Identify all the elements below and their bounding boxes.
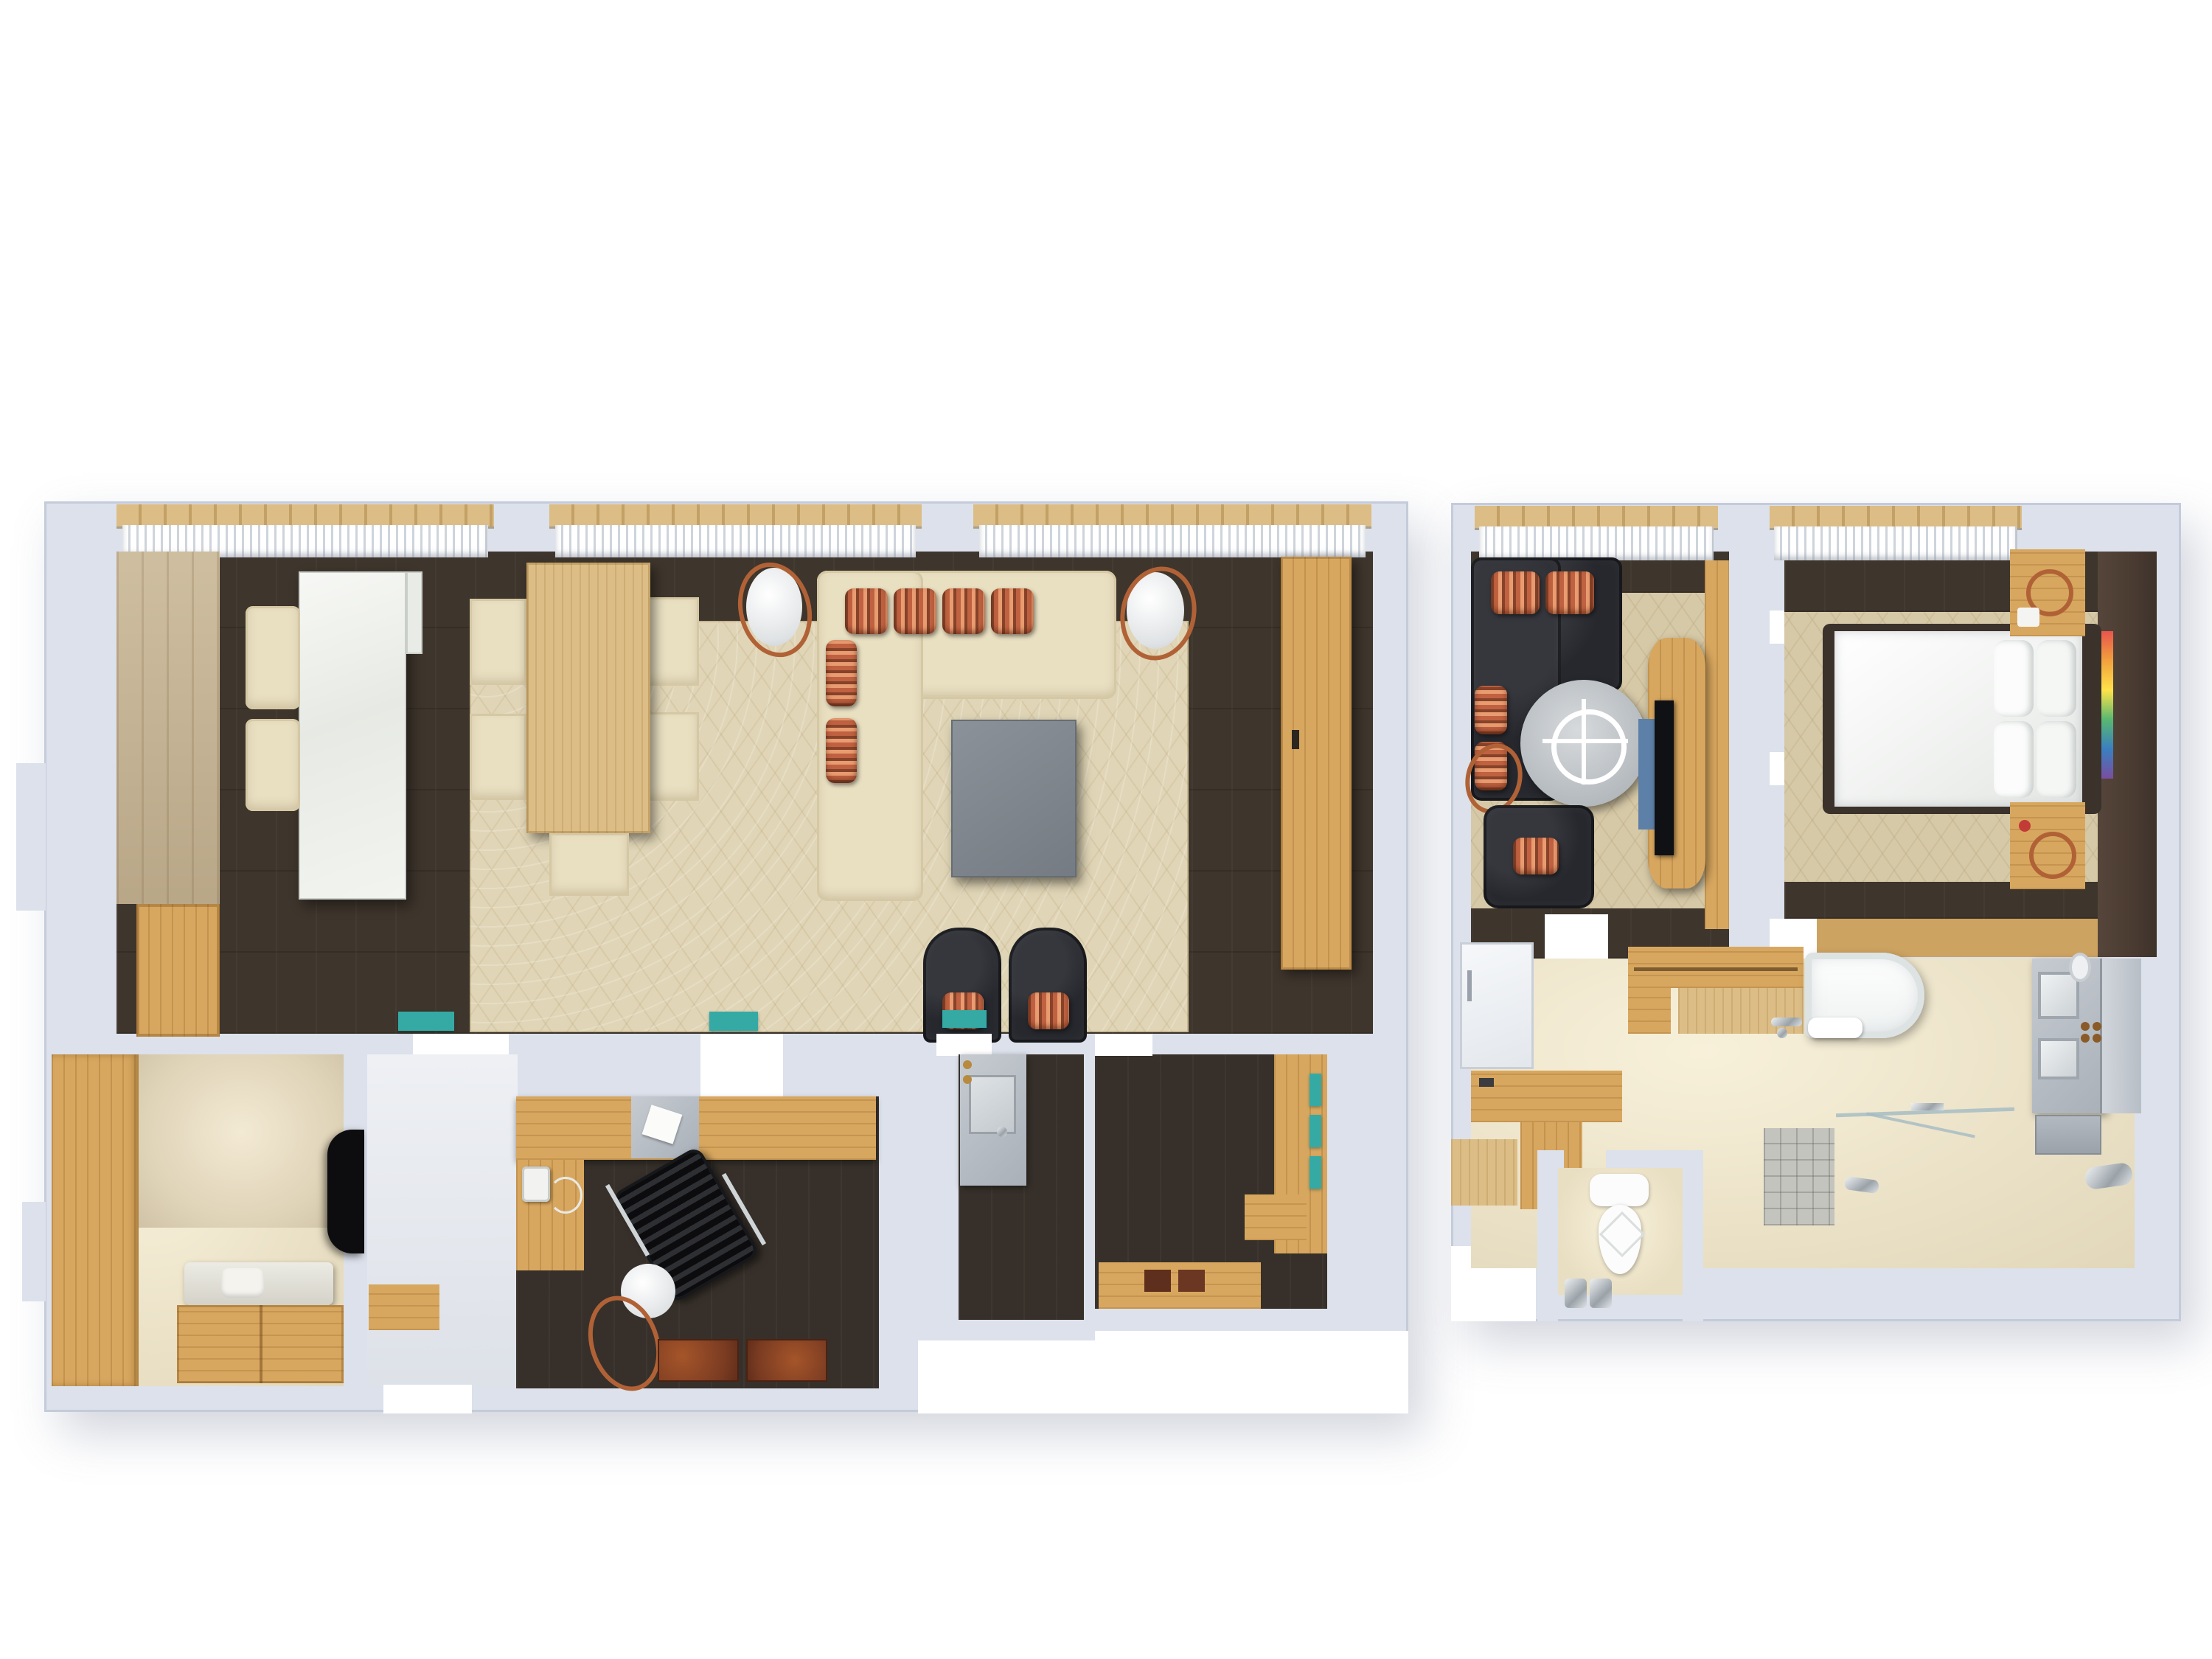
vanity-sink-2 bbox=[2038, 1038, 2079, 1079]
dark-sofa-pillow-3 bbox=[1475, 686, 1507, 734]
sofa-pillow-5 bbox=[826, 640, 857, 706]
vanity-oval-mirror bbox=[2069, 953, 2091, 982]
dark-sofa-pillow-2 bbox=[1545, 571, 1594, 614]
exterior-cutout-1 bbox=[1095, 1331, 1408, 1413]
wc-wall-top-2 bbox=[1606, 1150, 1703, 1168]
bedroom-wall-tab-1 bbox=[1770, 611, 1784, 644]
closet-glass-door-1 bbox=[1310, 1074, 1321, 1106]
door-mat-2 bbox=[709, 1012, 758, 1031]
bed-pillow-3 bbox=[2037, 640, 2076, 717]
bedroom-window-valance bbox=[1770, 506, 2022, 528]
wc-wall-left bbox=[1537, 1150, 1558, 1321]
closet-glass-door-2 bbox=[1310, 1115, 1321, 1147]
spa-wardrobe-panels bbox=[52, 1054, 139, 1386]
dining-chair-1 bbox=[470, 599, 526, 685]
vanity-knob-3 bbox=[2081, 1034, 2090, 1043]
dining-table bbox=[526, 563, 650, 833]
toilet-paper-roll-2 bbox=[1590, 1279, 1612, 1308]
vanity-lower-cabinet bbox=[2035, 1115, 2101, 1155]
kitchen-island bbox=[299, 571, 406, 900]
office-telephone bbox=[522, 1166, 550, 1202]
entry-wood-step bbox=[369, 1284, 439, 1330]
window-valance-3 bbox=[973, 504, 1371, 526]
office-rug-1 bbox=[658, 1339, 739, 1382]
dining-chair-5 bbox=[549, 833, 629, 896]
window-valance-1 bbox=[116, 504, 494, 526]
sitting-door-gap bbox=[1545, 914, 1608, 959]
powder-faucet bbox=[997, 1127, 1007, 1137]
powder-sink bbox=[969, 1075, 1016, 1134]
window-curtain-2 bbox=[555, 525, 916, 557]
office-phone-cord bbox=[549, 1177, 582, 1214]
toilet-tank bbox=[1590, 1174, 1649, 1206]
bedroom-window-curtain bbox=[1774, 526, 2017, 560]
media-cabinet bbox=[1281, 557, 1352, 970]
doorway-3 bbox=[936, 1034, 992, 1056]
kitchen-cabinet bbox=[136, 904, 220, 1037]
spa-wall-tv bbox=[327, 1130, 364, 1253]
spa-glow-wall bbox=[139, 1054, 344, 1228]
lounge-chair-2-pillow bbox=[1028, 992, 1069, 1029]
bed-pillow-1 bbox=[1994, 640, 2034, 717]
closet-stored-item-1 bbox=[1144, 1270, 1171, 1292]
table-lamp-2 bbox=[2029, 832, 2076, 879]
tub-faucet bbox=[1771, 1018, 1802, 1026]
window-valance-2 bbox=[549, 504, 922, 526]
media-cabinet-handle bbox=[1292, 730, 1299, 749]
closet-doorway bbox=[1095, 1034, 1152, 1056]
powder-towel-hook-1 bbox=[963, 1060, 972, 1069]
entry-hall-floor bbox=[367, 1054, 518, 1386]
floor-plan-scene bbox=[0, 0, 2212, 1659]
bed-pillow-2 bbox=[1994, 721, 2034, 798]
exterior-cutout-2 bbox=[918, 1340, 1095, 1413]
bedroom-threshold bbox=[1784, 919, 2098, 957]
door-mat-1 bbox=[398, 1012, 454, 1031]
closet-niche-rail bbox=[1634, 967, 1798, 971]
closet-niche-bench bbox=[1678, 988, 1804, 1034]
doorway-2 bbox=[700, 1034, 783, 1100]
sofa-pillow-4 bbox=[991, 588, 1034, 634]
closet-glass-door-3 bbox=[1310, 1156, 1321, 1189]
minibar-handle bbox=[1467, 970, 1472, 1001]
closet-stored-item-2 bbox=[1178, 1270, 1205, 1292]
sofa-pillow-1 bbox=[845, 588, 888, 634]
spa-drawer-seam bbox=[260, 1305, 262, 1383]
window-curtain-3 bbox=[979, 525, 1366, 557]
closet-niche-shelf bbox=[1628, 988, 1671, 1034]
coffee-table bbox=[951, 720, 1077, 877]
door-mat-3 bbox=[942, 1010, 987, 1028]
sitting-wood-wall-band bbox=[1705, 560, 1729, 929]
entry-door-gap bbox=[383, 1385, 472, 1413]
office-rug-2 bbox=[746, 1339, 827, 1382]
bar-stool-2 bbox=[246, 719, 300, 811]
dining-chair-2 bbox=[470, 714, 526, 800]
wc-wall-top bbox=[1537, 1150, 1564, 1168]
tub-faucet-handle bbox=[1777, 1028, 1787, 1038]
bedroom-wall-tab-2 bbox=[1770, 752, 1784, 785]
nightstand-phone bbox=[2017, 608, 2039, 627]
luggage-bench-3 bbox=[1451, 1139, 1517, 1206]
kitchen-island-step bbox=[406, 571, 422, 654]
sofa-pillow-3 bbox=[942, 588, 985, 634]
wc-wall-right bbox=[1683, 1150, 1703, 1321]
bathtub-headrest bbox=[1808, 1018, 1863, 1038]
powder-towel-hook-2 bbox=[963, 1075, 972, 1084]
sitting-window-valance bbox=[1475, 506, 1718, 528]
shower-tray bbox=[1764, 1128, 1834, 1225]
wood-panel-wall bbox=[116, 552, 220, 904]
dark-sofa-pillow-1 bbox=[1491, 571, 1540, 614]
vanity-knob-4 bbox=[2093, 1034, 2101, 1043]
tv-screen-glass bbox=[1638, 719, 1656, 829]
glass-table-cross-v bbox=[1582, 699, 1586, 785]
alarm-clock bbox=[2019, 820, 2031, 832]
glass-table-ring bbox=[1551, 709, 1627, 785]
sofa-pillow-2 bbox=[894, 588, 936, 634]
bedroom-artwork bbox=[2100, 631, 2113, 779]
left-wall-bump-1 bbox=[16, 763, 46, 911]
bar-stool-1 bbox=[246, 606, 300, 709]
shower-glass-bracket bbox=[1911, 1103, 1944, 1110]
vanity-knob-1 bbox=[2081, 1022, 2090, 1031]
bed-pillow-4 bbox=[2037, 721, 2076, 798]
minibar-cabinet bbox=[1460, 942, 1534, 1069]
massage-pillow bbox=[221, 1268, 264, 1298]
sitting-window-curtain bbox=[1479, 526, 1714, 560]
toilet-paper-roll-1 bbox=[1565, 1279, 1587, 1308]
sitting-chair-pillow bbox=[1513, 838, 1559, 874]
vanity-mirror-cabinet bbox=[2100, 959, 2141, 1113]
bench-remote bbox=[1479, 1078, 1494, 1087]
television bbox=[1655, 700, 1674, 855]
closet-corner-cabinet bbox=[1245, 1194, 1307, 1240]
left-wall-bump-2 bbox=[22, 1202, 46, 1301]
vanity-knob-2 bbox=[2093, 1022, 2101, 1031]
sofa-pillow-6 bbox=[826, 718, 857, 783]
